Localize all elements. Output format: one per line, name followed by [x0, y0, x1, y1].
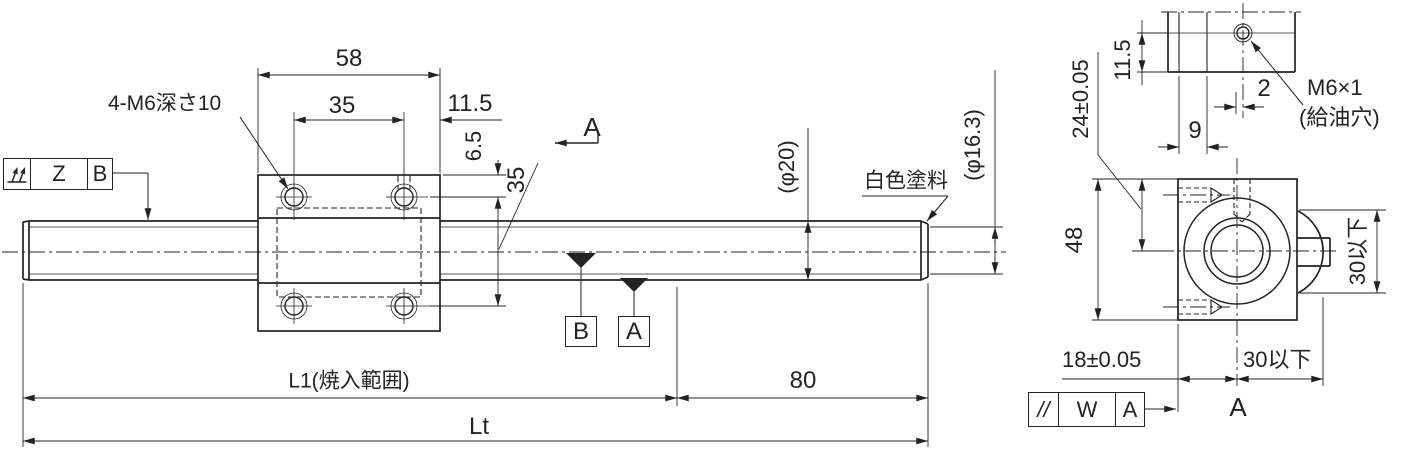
dim-hole-pitch-vertical: 35 [505, 167, 529, 194]
datum-target-b-box: B [565, 316, 597, 347]
thread-root-dia-ref: (φ16.3) [962, 109, 984, 181]
runout-symbol-cell [4, 159, 31, 189]
dim-hole-pitch-horizontal: 35 [329, 94, 356, 118]
technical-drawing: 4-M6深さ10 58 35 11.5 6.5 35 A (φ20) 白色塗料 … [0, 0, 1403, 449]
dim-hole-to-top: 6.5 [463, 131, 485, 162]
dim-center-height: 24±0.05 [1070, 59, 1092, 138]
dim-thread-end-length: 80 [790, 369, 817, 393]
nut-block-hidden-lines [277, 176, 421, 297]
drawing-linework [0, 0, 1403, 449]
parallelism-datum-label: A [1116, 393, 1144, 426]
dim-block-width: 58 [336, 47, 363, 71]
dim-boss-width: 30以下 [1243, 349, 1311, 371]
dim-total-length: Lt [469, 415, 489, 439]
section-view-oil-passage [1234, 179, 1250, 222]
top-view [1168, 12, 1295, 72]
datum-target-marks [566, 253, 648, 292]
leaders-front [113, 117, 948, 221]
section-label: A [583, 114, 600, 140]
datum-target-b-label: B [573, 318, 589, 346]
dim-boss-projection: 30以下 [1347, 217, 1369, 285]
oil-hole-spec: M6×1 [1307, 77, 1363, 99]
hole-note: 4-M6深さ10 [108, 93, 221, 114]
total-runout-icon [5, 163, 29, 185]
dim-tap-position: 9 [1188, 119, 1201, 143]
dim-block-height: 48 [1063, 227, 1087, 254]
datum-target-stems [581, 268, 634, 316]
mounting-holes [281, 184, 417, 319]
section-view-label: A [1229, 394, 1246, 420]
shaft-outline [23, 221, 928, 280]
runout-feature-control-frame: Z B [3, 158, 113, 190]
shaft-dia-ref: (φ20) [776, 140, 798, 193]
white-paint-note: 白色塗料 [864, 171, 948, 192]
dim-oil-hole-from-face: 11.5 [1112, 39, 1134, 80]
oil-hole-note: (給油穴) [1299, 107, 1380, 129]
runout-datum-label: B [88, 159, 112, 189]
centerlines [2, 3, 1340, 386]
section-view-outline [1178, 179, 1330, 320]
dim-hole-to-edge: 11.5 [448, 92, 493, 116]
dimension-lines-front [23, 70, 995, 441]
dim-center-from-face: 18±0.05 [1062, 349, 1141, 371]
datum-target-a-box: A [618, 316, 650, 347]
datum-target-a-label: A [626, 318, 642, 346]
shaft-thread-root-lines [29, 227, 921, 274]
runout-zone-label: Z [31, 159, 88, 189]
dim-hardening-range: L1(焼入範囲) [288, 371, 409, 392]
parallelism-zone-label: W [1059, 393, 1116, 426]
extension-lines-front [23, 68, 1003, 447]
dim-oil-hole-offset: 2 [1257, 77, 1270, 101]
parallelism-symbol-icon: // [1029, 393, 1059, 426]
parallelism-feature-control-frame: // W A [1028, 392, 1145, 427]
